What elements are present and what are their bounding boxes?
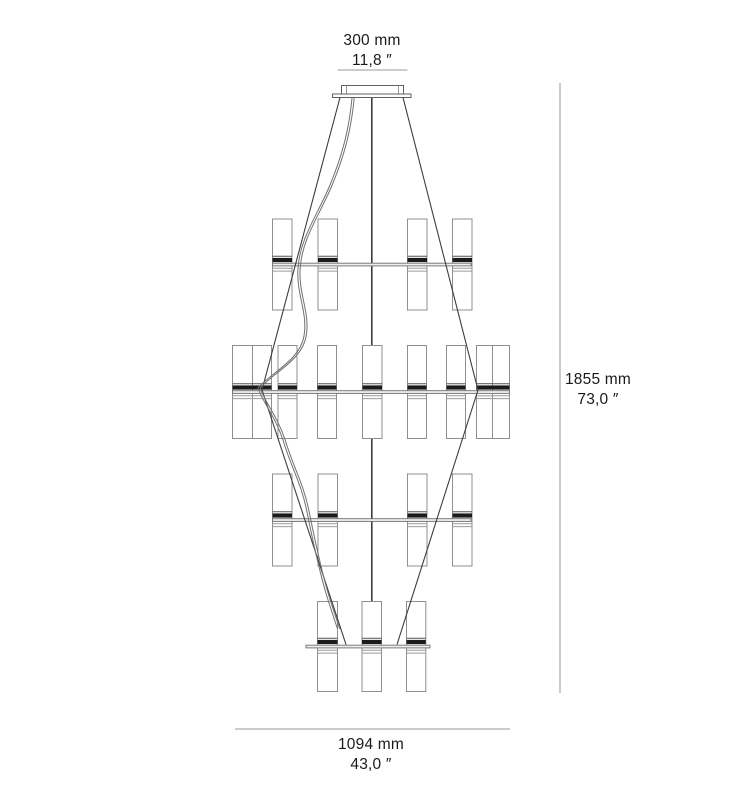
canopy-box: [342, 86, 404, 95]
tier-2-socket-band: [278, 385, 297, 389]
tier-4-socket-band: [318, 640, 338, 644]
overall-height-mm: 1855 mm: [518, 370, 678, 390]
tier-2-socket-band: [233, 385, 253, 389]
tier-2-socket-band: [477, 385, 493, 389]
tier-1-arm: [273, 263, 472, 266]
canopy-flange: [333, 94, 412, 98]
overall-height-dimension-label: 1855 mm 73,0 ″: [518, 370, 678, 409]
chandelier-dimension-diagram: 300 mm 11,8 ″ 1855 mm 73,0 ″ 1094 mm 43,…: [0, 0, 753, 793]
tier-4-socket-band: [407, 640, 426, 644]
tier-3-socket-band: [318, 513, 338, 517]
canopy-width-mm: 300 mm: [292, 31, 452, 51]
overall-width-inch: 43,0 ″: [291, 755, 451, 775]
tier-2-socket-band: [363, 385, 383, 389]
canopy-width-inch: 11,8 ″: [292, 51, 452, 71]
overall-height-inch: 73,0 ″: [518, 390, 678, 410]
tier-3-socket-band: [273, 513, 293, 517]
overall-width-dimension-label: 1094 mm 43,0 ″: [291, 735, 451, 774]
overall-width-mm: 1094 mm: [291, 735, 451, 755]
tier-3-arm: [273, 519, 472, 522]
tier-2-socket-band: [493, 385, 510, 389]
tier-2-socket-band: [408, 385, 427, 389]
canopy-width-dimension-label: 300 mm 11,8 ″: [292, 31, 452, 70]
tier-4-arm: [306, 645, 430, 648]
tier-1-socket-band: [408, 258, 428, 262]
tier-3-socket-band: [408, 513, 428, 517]
tier-2-arm: [233, 391, 510, 394]
tier-2-socket-band: [318, 385, 337, 389]
tier-1-socket-band: [318, 258, 338, 262]
tier-1-socket-band: [273, 258, 293, 262]
tier-1-socket-band: [453, 258, 473, 262]
tier-4-socket-band: [362, 640, 382, 644]
tier-2-socket-band: [447, 385, 466, 389]
tier-3-socket-band: [453, 513, 473, 517]
